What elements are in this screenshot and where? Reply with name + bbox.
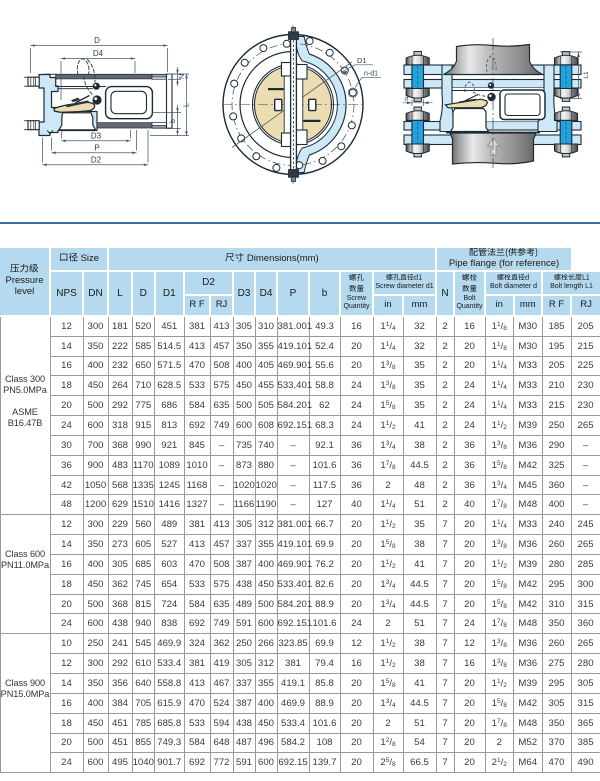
svg-text:D3: D3 [91,131,102,140]
svg-text:b: b [170,119,177,123]
svg-text:n-d1: n-d1 [364,71,378,78]
svg-text:N: N [179,74,186,79]
svg-text:P: P [94,143,99,152]
svg-text:D1: D1 [357,56,367,65]
svg-text:D2: D2 [91,155,102,164]
svg-text:L1: L1 [583,71,590,79]
svg-text:L: L [184,103,191,107]
svg-text:D: D [94,36,100,45]
svg-text:D4: D4 [93,49,104,58]
svg-text:d: d [405,96,409,103]
